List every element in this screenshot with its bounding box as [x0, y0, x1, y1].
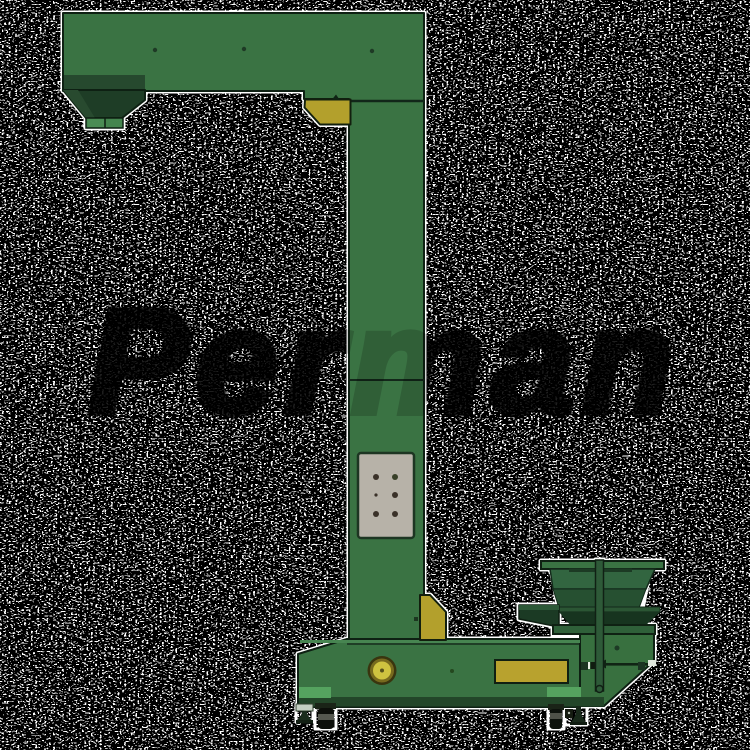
svg-text:Perman: Perman: [88, 277, 680, 445]
